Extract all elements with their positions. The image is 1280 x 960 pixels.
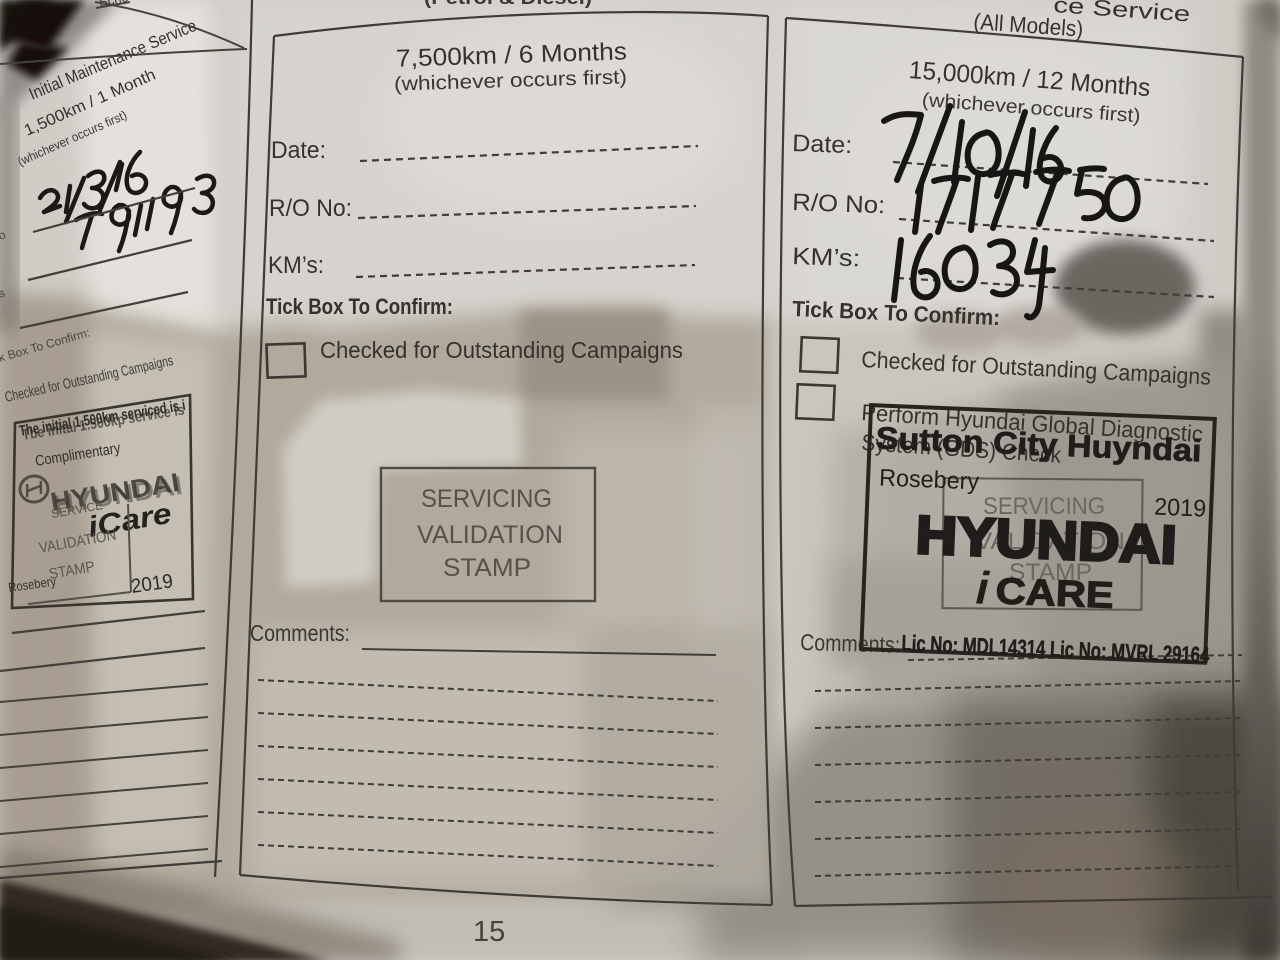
svg-text:Date:: Date:	[271, 137, 326, 164]
svg-text:STAMP: STAMP	[443, 554, 531, 582]
svg-text:CARE: CARE	[995, 570, 1115, 616]
svg-text:VALIDATION: VALIDATION	[417, 521, 563, 549]
svg-text:15: 15	[473, 916, 505, 948]
svg-text:(Petrol & Diesel): (Petrol & Diesel)	[424, 0, 592, 9]
svg-text:Date:: Date:	[792, 130, 853, 159]
svg-text:Checked for Outstanding Campai: Checked for Outstanding Campaigns	[320, 337, 683, 363]
svg-text:R/O No:: R/O No:	[269, 195, 352, 222]
svg-text:Comments:: Comments:	[800, 629, 901, 658]
svg-text:SERVICING: SERVICING	[421, 485, 552, 513]
svg-text:Comments:: Comments:	[250, 620, 350, 646]
svg-text:HYUNDAI: HYUNDAI	[915, 505, 1178, 575]
svg-text:Tick Box To Confirm:: Tick Box To Confirm:	[266, 294, 453, 319]
svg-text:KM’s:: KM’s:	[268, 252, 324, 279]
svg-text:Rosebery: Rosebery	[879, 465, 980, 496]
svg-text:R/O No:: R/O No:	[792, 189, 886, 219]
svg-text:KM’s:: KM’s:	[792, 243, 861, 272]
